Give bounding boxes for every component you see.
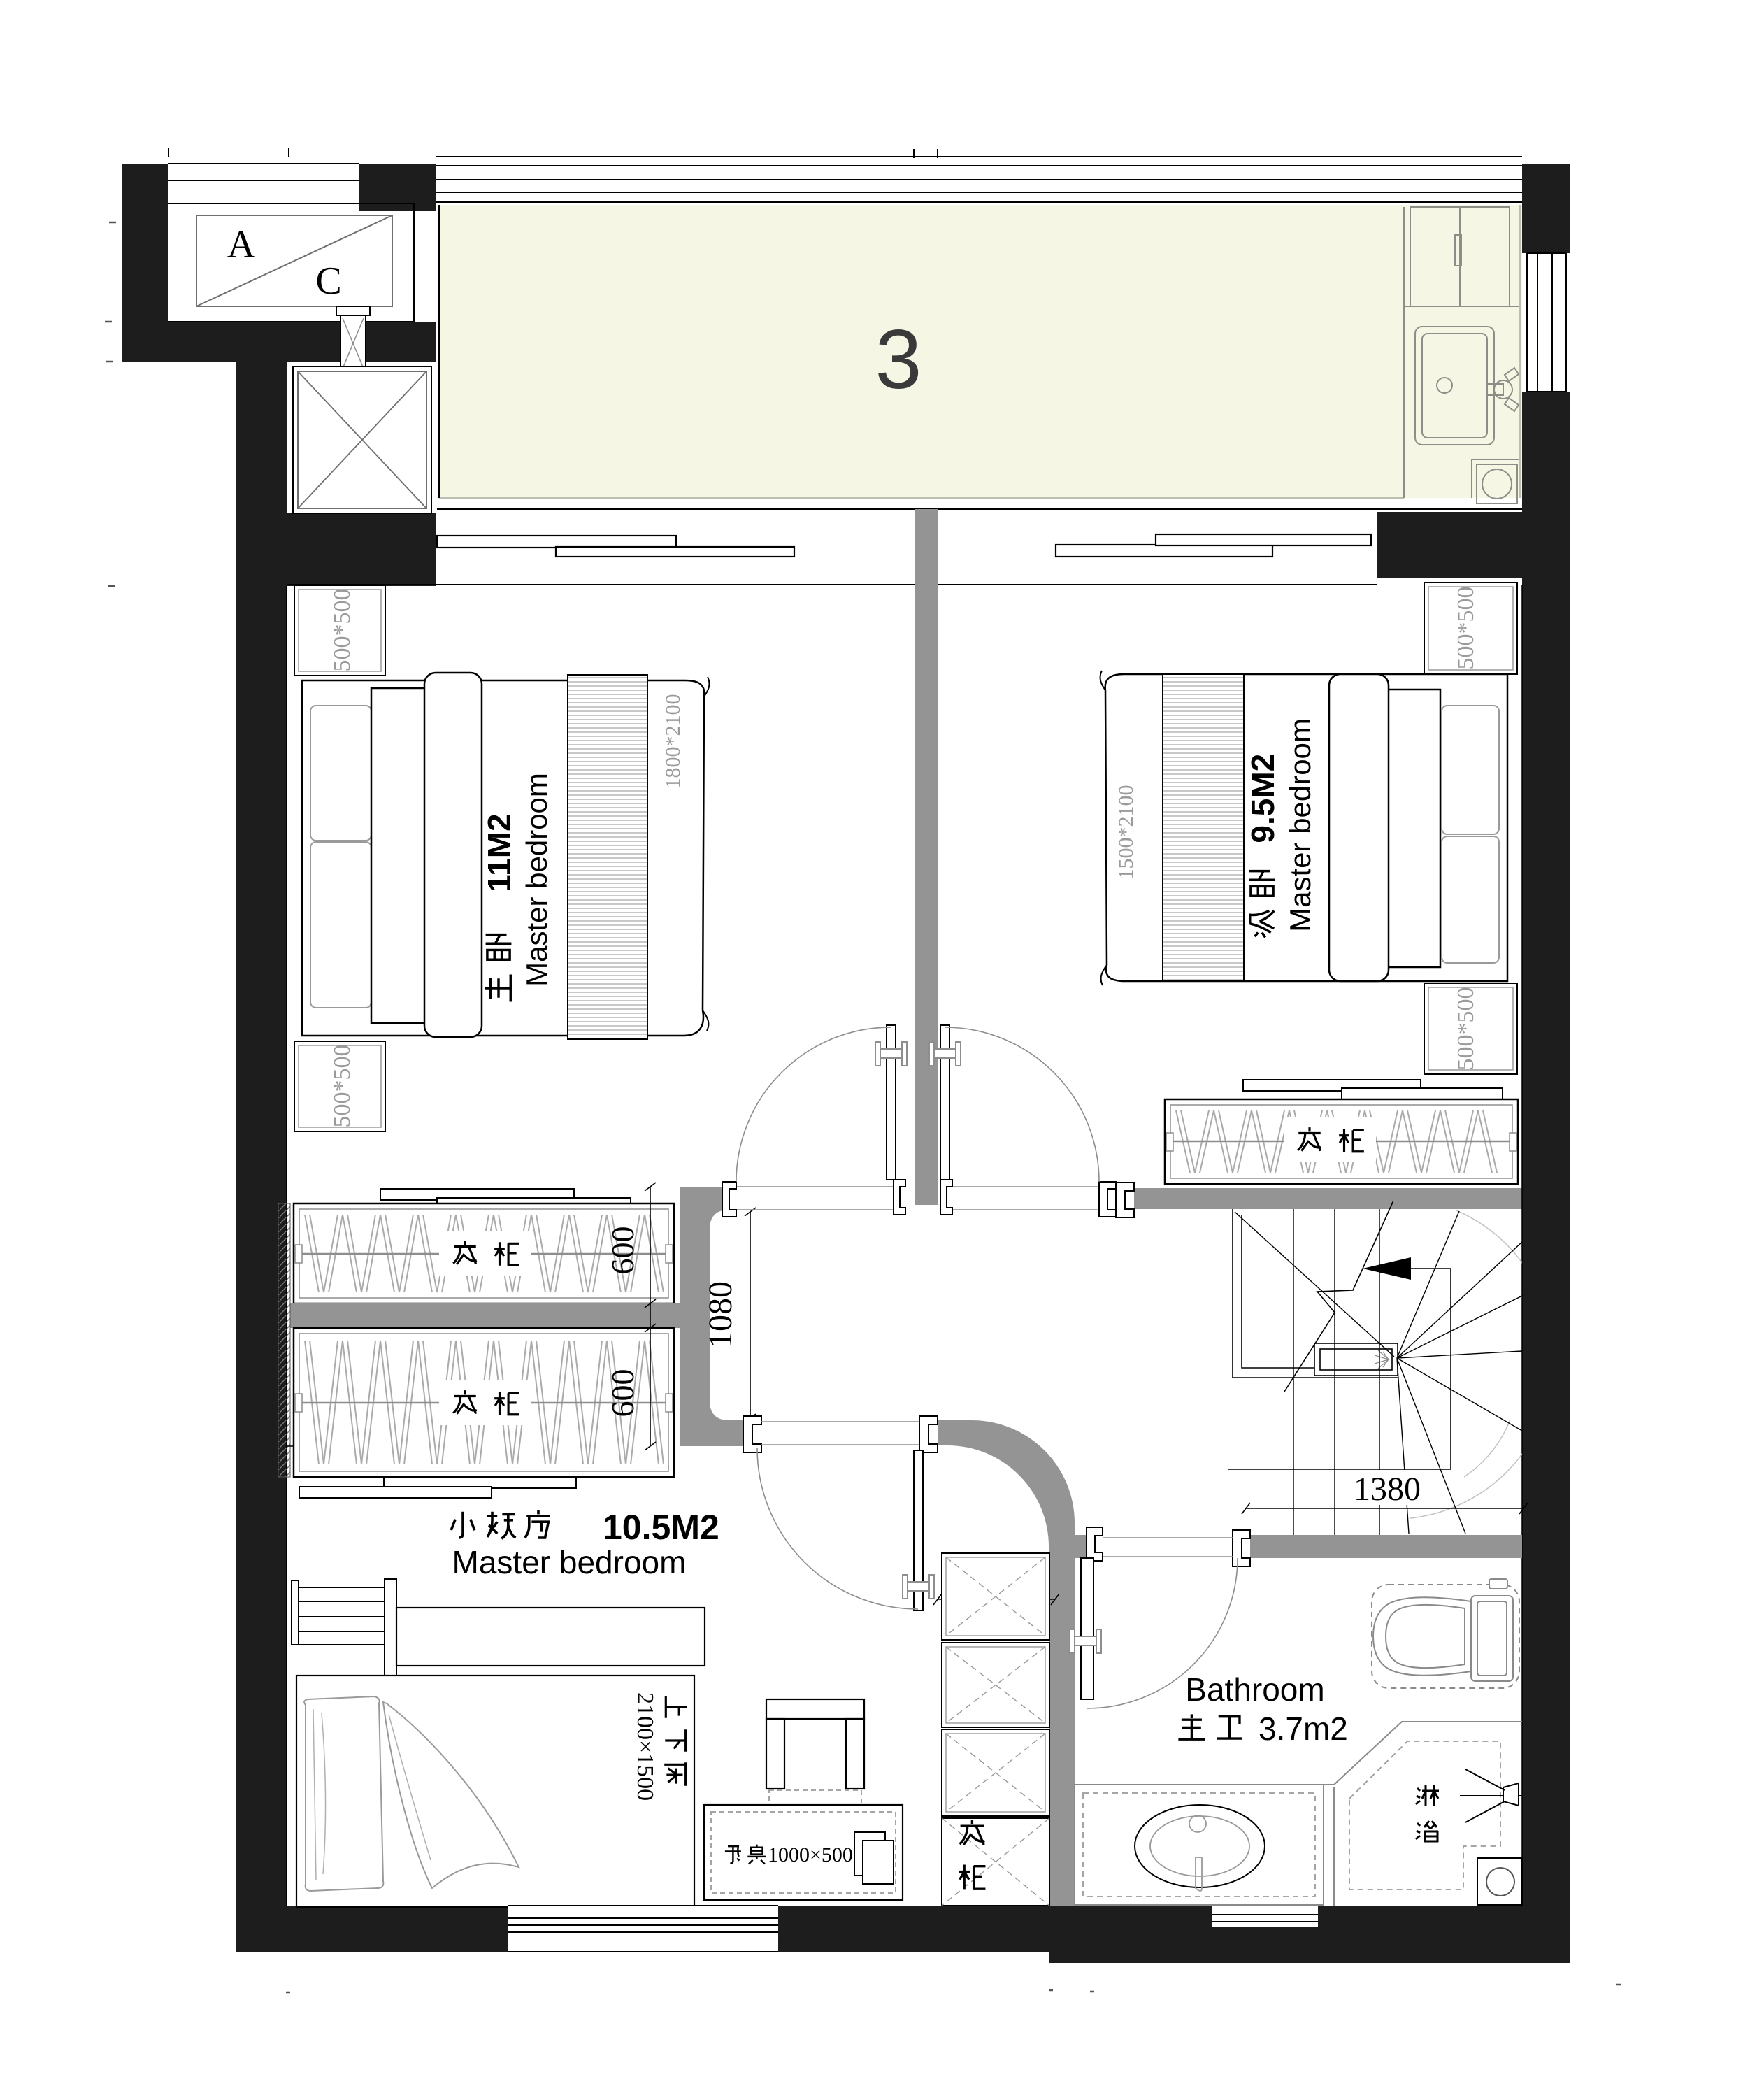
svg-text:1500*2100: 1500*2100 <box>1114 785 1138 880</box>
svg-text:600: 600 <box>605 1227 640 1275</box>
svg-text:Bathroom: Bathroom <box>1185 1671 1324 1708</box>
svg-text:10.5M2: 10.5M2 <box>603 1508 719 1547</box>
svg-text:500*500: 500*500 <box>329 589 355 672</box>
svg-text:2100×1500: 2100×1500 <box>632 1692 658 1801</box>
svg-text:C: C <box>315 259 341 303</box>
svg-text:500*500: 500*500 <box>329 1045 355 1128</box>
svg-text:1800*2100: 1800*2100 <box>661 694 684 789</box>
svg-text:1080: 1080 <box>702 1281 739 1348</box>
svg-text:A: A <box>227 223 256 266</box>
svg-text:600: 600 <box>605 1369 640 1417</box>
svg-text:Master bedroom: Master bedroom <box>1284 718 1317 932</box>
svg-text:3.7m2: 3.7m2 <box>1259 1710 1348 1747</box>
svg-text:9.5M2: 9.5M2 <box>1245 754 1281 897</box>
svg-text:3: 3 <box>875 313 922 406</box>
svg-text:1000×500: 1000×500 <box>768 1843 853 1866</box>
svg-text:500*500: 500*500 <box>1453 987 1479 1071</box>
svg-text:500*500: 500*500 <box>1453 587 1479 670</box>
svg-text:Master bedroom: Master bedroom <box>520 773 553 987</box>
svg-text:Master bedroom: Master bedroom <box>452 1544 687 1580</box>
svg-text:1380: 1380 <box>1354 1471 1421 1508</box>
svg-text:11M2: 11M2 <box>481 813 517 945</box>
